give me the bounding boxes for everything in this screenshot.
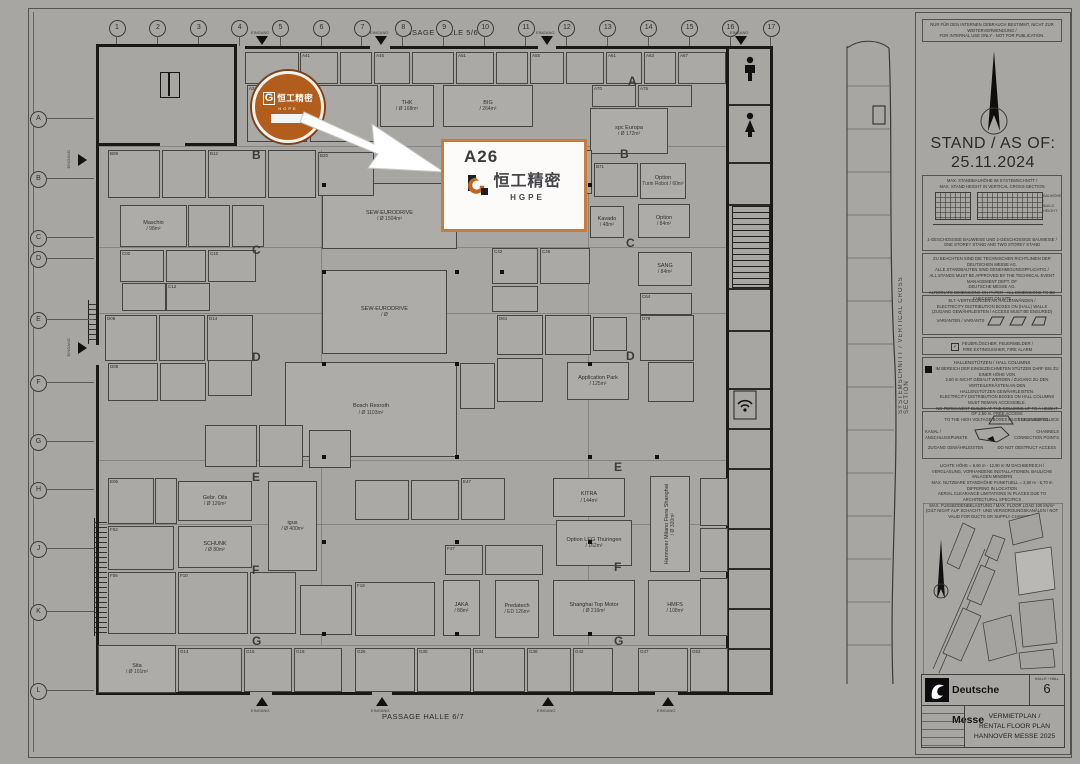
aisle-letter: F — [252, 563, 259, 577]
grid-column-marker: 7 — [354, 20, 371, 37]
grid-row-stem — [46, 690, 94, 691]
stand-name: Kavado — [598, 216, 617, 223]
stand-name: SEW-EURODRIVE — [361, 306, 408, 313]
stand-box: A70 — [592, 85, 636, 107]
stand-box — [155, 478, 177, 524]
fire-extinguisher-icon: F — [951, 343, 959, 351]
publisher-name: Deutsche Messe — [952, 675, 1029, 705]
stand-code: D61 — [499, 316, 507, 321]
grid-column-stem — [443, 36, 444, 46]
stand-box: C12 — [166, 283, 210, 311]
variants-label: VARIANTEN / VARIANTS — [937, 318, 985, 324]
stand-code: D08 — [110, 364, 118, 369]
grid-column-marker: 11 — [518, 20, 535, 37]
stand-as-of-date: 25.11.2024 — [916, 154, 1070, 172]
grid-column-marker: 9 — [436, 20, 453, 37]
stand-box: C10 — [208, 250, 256, 282]
hgpe-brand-en: HGPE — [278, 106, 297, 111]
stand-size: / 84m² — [657, 221, 671, 227]
aisle-letter: F — [614, 560, 621, 574]
service-strip-divider — [729, 568, 770, 570]
stand-callout-card: A26 恒工精密 HGPE — [441, 139, 587, 232]
stand-box — [208, 360, 252, 396]
grid-column-stem — [321, 36, 322, 46]
stand-box — [259, 425, 303, 467]
elevator-door-line — [168, 72, 170, 96]
stand-code: G52 — [692, 649, 701, 654]
entrance-label: EINGANG — [251, 30, 269, 35]
stand-hmfs: HMFS/ 108m² — [648, 580, 702, 636]
stand-kavado: Kavado/ 48m² — [590, 206, 624, 238]
hall-cross-section-drawing — [843, 36, 901, 692]
stand-box — [700, 528, 728, 572]
grid-column-marker: 6 — [313, 20, 330, 37]
grid-row-marker: B — [30, 171, 47, 188]
service-strip-divider — [729, 468, 770, 470]
stand-size: / 162m² — [586, 543, 603, 549]
stand-box: A63 — [644, 52, 676, 84]
stand-code: F47 — [447, 546, 455, 551]
service-strip-divider — [729, 104, 770, 106]
grid-column-stem — [566, 36, 567, 46]
stand-box — [309, 430, 351, 468]
sluice-shape-icon — [988, 415, 1014, 425]
grid-column-stem — [402, 36, 403, 46]
stand-name: spc Europa — [615, 125, 643, 132]
stand-code: G26 — [357, 649, 366, 654]
hall-wall — [96, 145, 99, 345]
hall-wall — [770, 46, 773, 695]
stand-box: A67 — [678, 52, 726, 84]
clearance-notes: LICHTE HÖHE = 6,60 m - 12,90 m IM DACHBE… — [922, 461, 1062, 495]
hall-column-icon — [455, 455, 459, 459]
stand-box: G26 — [355, 648, 415, 692]
grid-row-stem — [46, 441, 94, 442]
text-line: FEUERLÖSCHER, FEUERMELDER / — [962, 341, 1033, 347]
hgpe-logo-icon — [466, 173, 490, 197]
grid-row-stem — [46, 548, 94, 549]
aisle-letter: D — [252, 350, 261, 364]
stand-box: G34 — [473, 648, 525, 692]
stand-name: Sita — [132, 663, 141, 670]
stand-name: Option LEG Thüringen — [567, 537, 622, 544]
grid-row-stem — [46, 178, 94, 179]
stand-code: A51 — [458, 53, 466, 58]
hall-wall — [556, 46, 726, 49]
stand-box: D61 — [497, 315, 543, 355]
grid-row-stem — [46, 489, 94, 490]
stand-sita: Sita/ Ø 101m² — [98, 645, 176, 693]
stand-name: KITRA — [581, 491, 597, 498]
text-line: RENTAL FLOOR PLAN — [965, 722, 1064, 732]
stand-box: C42 — [492, 248, 538, 284]
text-line: FOR INTERNAL USE ONLY - NOT FOR PUBLICAT… — [925, 33, 1059, 39]
text-line: 2,50 m NICHT GEBAUT WERDEN / ZUGANG ZU D… — [935, 377, 1059, 388]
stand-code: A70 — [594, 86, 602, 91]
stand-box: A55 — [530, 52, 564, 84]
text-line: ELECTRICITY DISTRIBUTION BOXES ON HALL C… — [935, 394, 1059, 405]
stand-box: G38 — [527, 648, 571, 692]
stand-code: D79 — [642, 316, 650, 321]
stand-name: HMFS — [667, 602, 683, 609]
pointer-arrow-icon — [296, 106, 456, 196]
service-strip-divider — [729, 648, 770, 650]
stand-size: / 98m² — [146, 226, 160, 232]
sluice-label: SCHLEUSE / SLUICE — [1018, 417, 1059, 423]
text-line: MAX. STAND HEIGHT IN VERTICAL CROSS-SECT… — [925, 184, 1059, 190]
entrance-arrow-icon — [735, 36, 747, 45]
stand-name: Predatech — [504, 603, 529, 610]
stand-name: SEW-EURODRIVE — [366, 210, 413, 217]
hall-wall — [726, 692, 773, 695]
stand-code: G42 — [575, 649, 584, 654]
stand-size: / Ø 320m² — [670, 513, 676, 535]
stand-igus: igus/ Ø 400m² — [268, 481, 317, 571]
hall-wall — [390, 46, 538, 49]
stand-code: A55 — [532, 53, 540, 58]
hall-wall — [272, 692, 372, 695]
passage-label-bottom: PASSAGE HALLE 6/7 — [382, 712, 464, 721]
grid-row-marker: D — [30, 251, 47, 268]
entrance-label: EINGANG — [536, 30, 554, 35]
stand-name: igus — [287, 520, 297, 527]
hall-columns-heading: HALLENSTÜTZEN / HALL COLUMNS — [925, 360, 1059, 365]
stand-box — [497, 358, 543, 402]
entrance-arrow-icon — [78, 154, 87, 166]
text-line: ZU BEACHTEN SIND DIE TECHNISCHEN RICHTLI… — [925, 256, 1059, 267]
stand-box: G30 — [417, 648, 471, 692]
stand-size: Turin Robot / 60m² — [642, 181, 684, 187]
stand-size: / Ø 400m² — [281, 526, 303, 532]
grid-column-stem — [770, 36, 771, 46]
stand-box — [492, 286, 538, 312]
hall-column-icon — [588, 455, 592, 459]
service-strip-divider — [729, 162, 770, 164]
stand-box: G47 — [638, 648, 688, 692]
stand-box — [166, 250, 206, 282]
grid-row-stem — [46, 237, 94, 238]
hall-wall — [96, 44, 237, 47]
service-strip-divider — [729, 528, 770, 530]
entrance-label: EINGANG — [371, 708, 389, 713]
variant-shapes-icon — [987, 316, 1047, 326]
grid-column-marker: 5 — [272, 20, 289, 37]
stand-size: / 144m² — [581, 498, 598, 504]
hall-column-icon — [322, 455, 326, 459]
kanal-label: KANAL / ANSCHLUSSPUNKTE — [925, 429, 968, 440]
stand-box — [355, 480, 409, 520]
stand-box: A75 — [638, 85, 692, 107]
stand-box — [159, 315, 205, 361]
stand-box: E47 — [461, 478, 505, 520]
stand-box: D08 — [108, 363, 158, 401]
aisle-line — [98, 645, 726, 646]
stand-name: Option — [656, 215, 672, 222]
stand-box: F02 — [108, 526, 174, 570]
stand-box — [566, 52, 604, 84]
fire-safety-lines: FEUERLÖSCHER, FEUERMELDER /FIRE EXTINGUI… — [962, 341, 1033, 352]
stand-size: / Ø 1504m² — [377, 216, 402, 222]
stand-code: D14 — [209, 316, 217, 321]
stand-name: BIG — [483, 100, 492, 107]
plan-title: VERMIETPLAN /RENTAL FLOOR PLANHANNOVER M… — [965, 706, 1064, 748]
stand-size: / 84m² — [658, 269, 672, 275]
stand-box: F06 — [108, 572, 176, 634]
stand-size: / 108m² — [667, 608, 684, 614]
title-block: Deutsche Messe HALLE / HALL 6 VERMIETPLA… — [921, 674, 1065, 748]
stand-box: B71 — [594, 163, 638, 197]
wifi-icon — [733, 390, 757, 420]
aisle-letter: A — [628, 74, 637, 88]
brand-name-en: HGPE — [510, 193, 545, 202]
text-line: ONE STOREY STAND AND TWO STOREY STAND — [923, 242, 1061, 248]
stand-box: C64 — [640, 293, 692, 315]
stand-name: Application Park — [578, 375, 618, 382]
sluice-channels-box: SCHLEUSE / SLUICE KANAL / ANSCHLUSSPUNKT… — [922, 411, 1062, 459]
grid-column-marker: 17 — [763, 20, 780, 37]
aisle-letter: B — [620, 147, 629, 161]
hall-column-icon — [455, 540, 459, 544]
stand-box — [188, 205, 230, 247]
stand-box — [700, 478, 728, 526]
disclaimer-box: NUR FÜR DEN INTERNEN GEBRAUCH BESTIMMT, … — [922, 19, 1062, 42]
entrance-arrow-icon — [542, 697, 554, 706]
entrance-arrow-icon — [662, 697, 674, 706]
brand-name-cn: 恒工精密 — [493, 173, 561, 191]
grid-column-stem — [607, 36, 608, 46]
hall-column-icon — [588, 632, 592, 636]
stand-code: F18 — [357, 583, 365, 588]
stand-size: / ED 126m² — [504, 609, 529, 615]
hall-wall — [245, 46, 370, 49]
stand-kitra: KITRA/ 144m² — [553, 478, 625, 517]
text-line: LICHTE HÖHE = 6,60 m - 12,90 m IM DACHBE… — [924, 463, 1060, 469]
grid-column-marker: 10 — [477, 20, 494, 37]
grid-column-stem — [689, 36, 690, 46]
stand-size: / 48m² — [600, 222, 614, 228]
aisle-letter: E — [614, 460, 622, 474]
hall-number-cell: HALLE / HALL 6 — [1029, 675, 1064, 705]
stand-box — [545, 315, 591, 355]
stand-code: A63 — [646, 53, 654, 58]
stand-name: Option — [655, 175, 671, 182]
restroom-woman-icon — [742, 112, 758, 138]
stand-gebr-oils: Gebr. Oils/ Ø 126m² — [178, 481, 252, 521]
stand-sew-eurodrive: SEW-EURODRIVE/ Ø — [322, 270, 447, 354]
stand-option: OptionTurin Robot / 60m² — [640, 163, 686, 199]
stand-code: C10 — [210, 251, 218, 256]
aisle-letter: C — [252, 243, 261, 257]
grid-row-stem — [46, 611, 94, 612]
stand-box — [300, 585, 352, 635]
grid-column-stem — [239, 36, 240, 46]
stand-code: F02 — [110, 527, 118, 532]
stand-box: F47 — [445, 545, 483, 575]
stand-name: SCHUNK — [203, 541, 226, 548]
text-line: VERGLASUNG, VORHANDENE INSTALLATIONEN, B… — [924, 469, 1060, 480]
fire-safety-box: F FEUERLÖSCHER, FEUERMELDER /FIRE EXTING… — [922, 337, 1062, 355]
stand-box: D06 — [105, 315, 157, 361]
plan-legend-sidebar: NUR FÜR DEN INTERNEN GEBRAUCH BESTIMMT, … — [915, 12, 1071, 755]
entrance-label: EINGANG — [251, 708, 269, 713]
stand-code: B08 — [110, 151, 118, 156]
elevator-icon — [160, 72, 180, 98]
entrance-arrow-icon — [541, 36, 553, 45]
stand-box: G16 — [244, 648, 292, 692]
stand-box: B08 — [108, 150, 160, 198]
hgpe-brand-cn: 恒工精密 — [277, 92, 313, 104]
stand-code: C64 — [642, 294, 650, 299]
hall-column-icon — [925, 366, 932, 373]
service-strip-divider — [729, 288, 770, 290]
stand-box: C02 — [120, 250, 164, 282]
grid-column-marker: 15 — [681, 20, 698, 37]
text-line: VERMIETPLAN / — [965, 712, 1064, 722]
cross-section-label: SYSTEMSCHNITT / VERTICAL CROSS SECTION — [898, 244, 910, 414]
stand-code: F06 — [110, 573, 118, 578]
stand-option: Option/ 84m² — [638, 204, 690, 238]
max-height-box: MAX. STANDBAUHÖHE IM SYSTEMSCHNITT /MAX.… — [922, 175, 1062, 251]
deutsche-messe-logo-icon — [925, 678, 949, 702]
stand-box — [160, 363, 206, 401]
stand-sang: SANG/ 84m² — [638, 252, 692, 286]
hall-number: 6 — [1030, 681, 1064, 696]
grid-row-stem — [46, 258, 94, 259]
stand-box: G52 — [690, 648, 728, 692]
title-block-header: Deutsche Messe HALLE / HALL 6 — [922, 675, 1064, 706]
stand-code: G18 — [296, 649, 305, 654]
stand-size: / Ø — [381, 312, 388, 318]
aisle-letter: G — [614, 634, 623, 648]
stand-box: F18 — [355, 582, 435, 636]
stand-code: A61 — [608, 53, 616, 58]
stand-box — [250, 572, 296, 634]
stand-box: G14 — [178, 648, 242, 692]
hall-wall — [392, 692, 655, 695]
access-label-en: DO NOT OBSTRUCT ACCESS — [998, 445, 1056, 450]
stand-code: A75 — [640, 86, 648, 91]
text-line: ALL STANDS MUST BE APPROVED BY THE TECHN… — [925, 273, 1059, 284]
rental-floor-plan-sheet: PASSAGE HALLE 5/6 PASSAGE HALLE 6/7 1234… — [0, 0, 1080, 764]
stand-size: / 264m² — [480, 106, 497, 112]
hall-column-icon — [588, 540, 592, 544]
stand-box: A45 — [374, 52, 410, 84]
stand-size: / Ø 80m² — [205, 547, 224, 553]
text-line: MAX. NUTZBARE STANDHÖHE PUNKTUELL = 2,50… — [924, 480, 1060, 491]
stand-code: A41 — [302, 53, 310, 58]
hall-column-icon — [455, 632, 459, 636]
grid-row-marker: L — [30, 683, 47, 700]
hall-column-icon — [500, 270, 504, 274]
entrance-label: EINGANG — [370, 30, 388, 35]
stand-box — [412, 52, 454, 84]
max-height-heading: MAX. STANDBAUHÖHE IM SYSTEMSCHNITT /MAX.… — [925, 178, 1059, 189]
stand-name: JAKA — [455, 602, 469, 609]
stand-box — [496, 52, 528, 84]
grid-column-stem — [484, 36, 485, 46]
stand-name: Gebr. Oils — [203, 495, 227, 502]
stand-jaka: JAKA/ 88m² — [443, 580, 480, 636]
hall-column-icon — [322, 362, 326, 366]
title-block-table — [922, 706, 965, 748]
entrance-label: EINGANG — [537, 708, 555, 713]
stand-size: / Ø 1103m² — [359, 410, 384, 416]
grid-row-stem — [46, 382, 94, 383]
stand-box: G42 — [573, 648, 613, 692]
grid-row-stem — [46, 319, 94, 320]
grid-row-marker: F — [30, 375, 47, 392]
stand-id: A26 — [464, 147, 576, 167]
text-line: AERIAL CLEARANCE LIMITATIONS IN PLACES D… — [924, 491, 1060, 502]
aisle-line — [98, 460, 726, 461]
hall-column-icon — [322, 270, 326, 274]
grid-column-stem — [730, 36, 731, 46]
entrance-arrow-icon — [78, 342, 87, 354]
service-strip-divider — [729, 330, 770, 332]
one-storey-diagram — [935, 192, 971, 220]
stand-shanghai-top-motor: Shanghai Top Motor/ Ø 216m² — [553, 580, 635, 636]
stand-box — [411, 480, 459, 520]
channel-shape-icon — [971, 426, 1011, 444]
stand-size: / Ø 101m² — [126, 669, 148, 675]
stand-size: / 125m² — [590, 381, 607, 387]
stand-box — [205, 425, 257, 467]
stand-size: / Ø 172m² — [618, 131, 640, 137]
text-line: FIRE EXTINGUISHER, FIRE ALARM — [962, 347, 1033, 353]
hgpe-g-icon: G — [263, 92, 276, 105]
grid-row-marker: C — [30, 230, 47, 247]
build-height-label: BAUHÖHE /BUILD HEIGHT — [1043, 194, 1059, 214]
entrance-arrow-icon — [256, 697, 268, 706]
aisle-letter: G — [252, 634, 261, 648]
entrance-arrow-icon — [256, 36, 268, 45]
stand-code: A67 — [680, 53, 688, 58]
service-strip-divider — [729, 608, 770, 610]
channels-label: CHANNELS CONNECTION POINTS — [1014, 429, 1059, 440]
stand-box — [700, 578, 728, 636]
hall-column-icon — [588, 183, 592, 187]
stand-box — [162, 150, 206, 198]
two-storey-diagram — [977, 192, 1043, 220]
stand-box: G18 — [294, 648, 342, 692]
grid-row-stem — [46, 118, 94, 119]
access-label-de: ZUGANG GEWÄHRLEISTEN — [928, 445, 983, 450]
entrance-arrow-icon — [376, 697, 388, 706]
grid-column-stem — [280, 36, 281, 46]
text-line: IM BEREICH DER EINGEZEICHNETEN STÜTZEN D… — [935, 366, 1059, 377]
stand-code: G38 — [529, 649, 538, 654]
text-line: (ZUGANG GEWÄHRLEISTEN / ACCESS MUST BE E… — [925, 309, 1059, 315]
stand-hannover-milano-fiera-shanghai: Hannover Milano Fiera Shanghai/ Ø 320m² — [650, 476, 690, 572]
approval-notes-box: ZU BEACHTEN SIND DIE TECHNISCHEN RICHTLI… — [922, 253, 1062, 293]
grid-row-marker: A — [30, 111, 47, 128]
stand-box: E06 — [108, 478, 154, 524]
aisle-letter: D — [626, 349, 635, 363]
storey-caption: 1-GESCHOSSIGE BAUWEISE UND 2-GESCHOSSIGE… — [923, 237, 1061, 248]
stand-code: G14 — [180, 649, 189, 654]
stand-as-of-label: STAND / AS OF: — [916, 135, 1070, 153]
stand-maschio: Maschio/ 98m² — [120, 205, 187, 247]
hall-column-icon — [455, 270, 459, 274]
stand-code: A45 — [376, 53, 384, 58]
entrance-label: EINGANG — [66, 150, 71, 168]
stand-application-park: Application Park/ 125m² — [567, 362, 629, 400]
entrance-arrow-icon — [375, 36, 387, 45]
hall-columns-box: HALLENSTÜTZEN / HALL COLUMNS IM BEREICH … — [922, 357, 1062, 409]
stand-box: C46 — [540, 248, 590, 284]
grid-row-marker: K — [30, 604, 47, 621]
aisle-letter: E — [252, 470, 260, 484]
